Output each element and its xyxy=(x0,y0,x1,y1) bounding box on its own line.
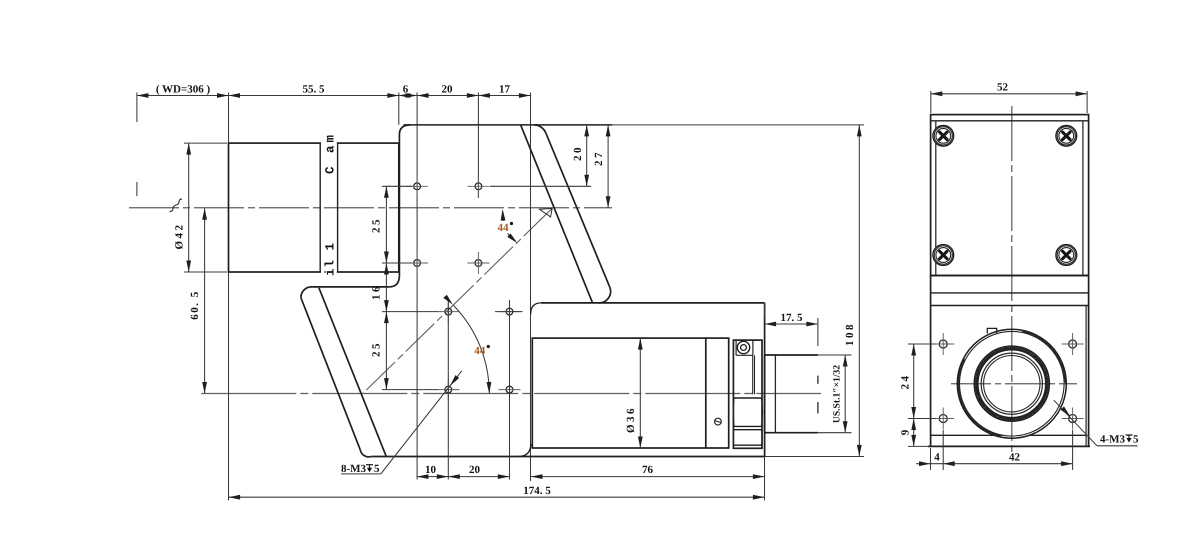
svg-text:25: 25 xyxy=(371,341,383,357)
svg-text:9: 9 xyxy=(900,429,912,435)
svg-text:44: 44 xyxy=(474,345,486,357)
svg-text:C am: C am xyxy=(324,132,338,174)
svg-text:il 1: il 1 xyxy=(324,242,338,276)
svg-text:27: 27 xyxy=(593,150,605,166)
svg-text:4: 4 xyxy=(934,451,940,463)
svg-text:55. 5: 55. 5 xyxy=(303,83,326,95)
svg-text:52: 52 xyxy=(997,82,1009,94)
svg-text:Ø36: Ø36 xyxy=(625,406,637,433)
svg-text:44: 44 xyxy=(498,222,510,234)
svg-text:Ø42: Ø42 xyxy=(174,222,186,249)
svg-text:60. 5: 60. 5 xyxy=(189,290,201,320)
svg-text:17: 17 xyxy=(499,83,511,95)
svg-text:25: 25 xyxy=(371,217,383,233)
svg-text:20: 20 xyxy=(572,145,584,161)
svg-text:( WD=306 ): ( WD=306 ) xyxy=(156,83,211,95)
svg-text:10: 10 xyxy=(425,464,437,476)
svg-text:5: 5 xyxy=(1133,434,1139,446)
svg-text:17. 5: 17. 5 xyxy=(781,312,804,324)
svg-text:6: 6 xyxy=(403,83,409,95)
svg-text:24: 24 xyxy=(900,374,912,390)
svg-text:US.St.1″×1/32: US.St.1″×1/32 xyxy=(832,365,843,423)
svg-text:174. 5: 174. 5 xyxy=(523,485,551,497)
svg-text:76: 76 xyxy=(642,464,654,476)
svg-text:20: 20 xyxy=(469,464,481,476)
svg-text:4-M3: 4-M3 xyxy=(1100,434,1126,446)
svg-text:108: 108 xyxy=(844,322,856,346)
svg-text:16: 16 xyxy=(371,284,383,300)
svg-text:42: 42 xyxy=(1009,451,1021,463)
svg-text:20: 20 xyxy=(442,83,454,95)
